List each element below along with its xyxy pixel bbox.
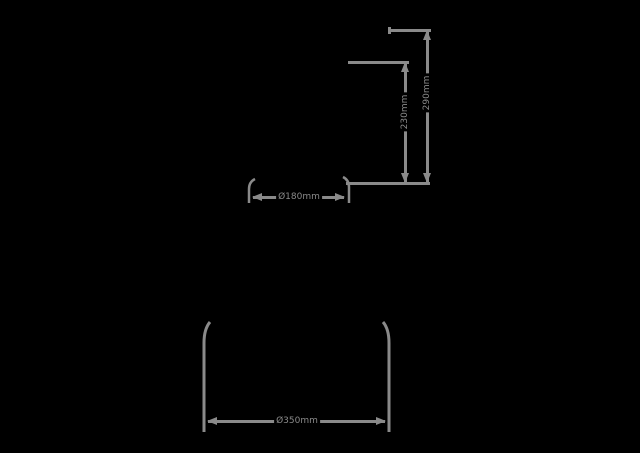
arrowhead-left-icon	[207, 417, 217, 425]
arrowhead-right-icon	[335, 193, 345, 201]
dimension-label-partial-height: 230mm	[400, 93, 410, 132]
arrowhead-up-icon	[423, 30, 431, 40]
extension-line-middle	[348, 61, 409, 64]
arrowhead-down-icon	[423, 173, 431, 183]
arrowhead-left-icon	[252, 193, 262, 201]
arrowhead-up-icon	[401, 62, 409, 72]
dimension-drawing-canvas: 290mm 230mm Ø180mm Ø350mm	[0, 0, 640, 453]
arrowhead-right-icon	[376, 417, 386, 425]
dimension-label-overall-height: 290mm	[422, 74, 432, 113]
arrowhead-down-icon	[401, 173, 409, 183]
dimension-label-bottom-diameter: Ø350mm	[274, 416, 320, 426]
dimension-label-top-diameter: Ø180mm	[276, 192, 322, 202]
extension-line-lower	[346, 182, 430, 185]
